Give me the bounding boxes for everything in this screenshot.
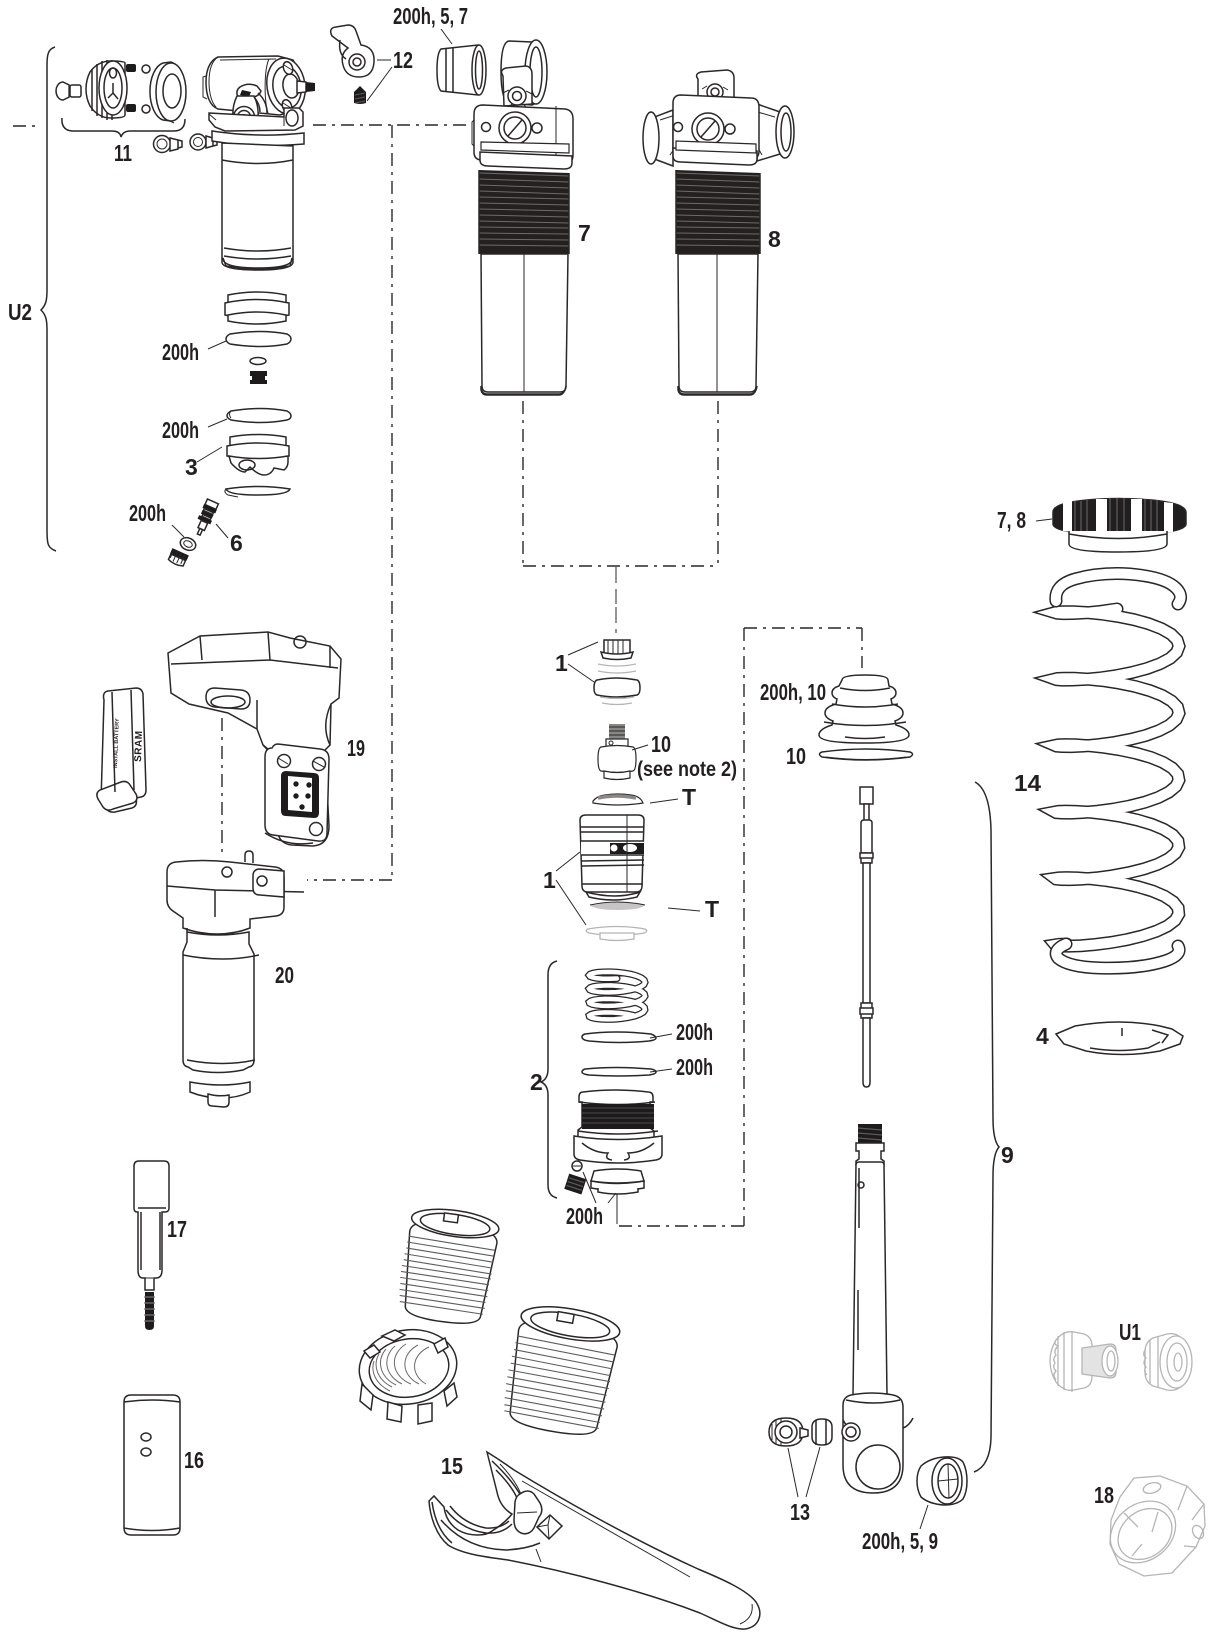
svg-text:15: 15	[441, 1453, 463, 1479]
svg-text:12: 12	[393, 47, 413, 73]
svg-text:T: T	[705, 896, 719, 922]
svg-text:7, 8: 7, 8	[997, 507, 1026, 533]
svg-text:(see note 2): (see note 2)	[637, 758, 737, 781]
svg-text:7: 7	[578, 220, 591, 246]
svg-text:200h: 200h	[676, 1019, 713, 1045]
svg-text:200h: 200h	[676, 1054, 713, 1080]
svg-text:U2: U2	[8, 299, 32, 325]
svg-text:20: 20	[275, 962, 294, 988]
svg-text:8: 8	[768, 226, 781, 252]
svg-text:4: 4	[1036, 1023, 1049, 1049]
svg-text:13: 13	[790, 1499, 810, 1525]
svg-text:17: 17	[167, 1216, 187, 1242]
svg-text:U1: U1	[1119, 1319, 1141, 1345]
svg-text:200h, 5, 9: 200h, 5, 9	[862, 1528, 938, 1554]
svg-text:1: 1	[543, 867, 556, 893]
svg-text:200h, 10: 200h, 10	[760, 679, 826, 705]
svg-text:9: 9	[1001, 1142, 1014, 1168]
svg-text:200h: 200h	[129, 500, 166, 526]
svg-text:200h: 200h	[566, 1203, 603, 1229]
svg-text:16: 16	[184, 1447, 204, 1473]
svg-text:10: 10	[786, 743, 806, 769]
svg-text:6: 6	[230, 530, 243, 556]
svg-text:200h, 5, 7: 200h, 5, 7	[393, 3, 468, 29]
svg-text:2: 2	[530, 1069, 543, 1095]
svg-text:10: 10	[651, 731, 671, 757]
svg-text:19: 19	[347, 735, 365, 761]
svg-text:SRAM: SRAM	[133, 730, 145, 762]
svg-text:14: 14	[1014, 770, 1041, 796]
svg-text:200h: 200h	[162, 339, 199, 365]
svg-text:11: 11	[114, 140, 132, 166]
svg-text:18: 18	[1094, 1482, 1114, 1508]
svg-text:3: 3	[185, 454, 198, 480]
svg-text:1: 1	[555, 650, 568, 676]
svg-text:T: T	[682, 784, 696, 810]
svg-text:200h: 200h	[162, 417, 199, 443]
